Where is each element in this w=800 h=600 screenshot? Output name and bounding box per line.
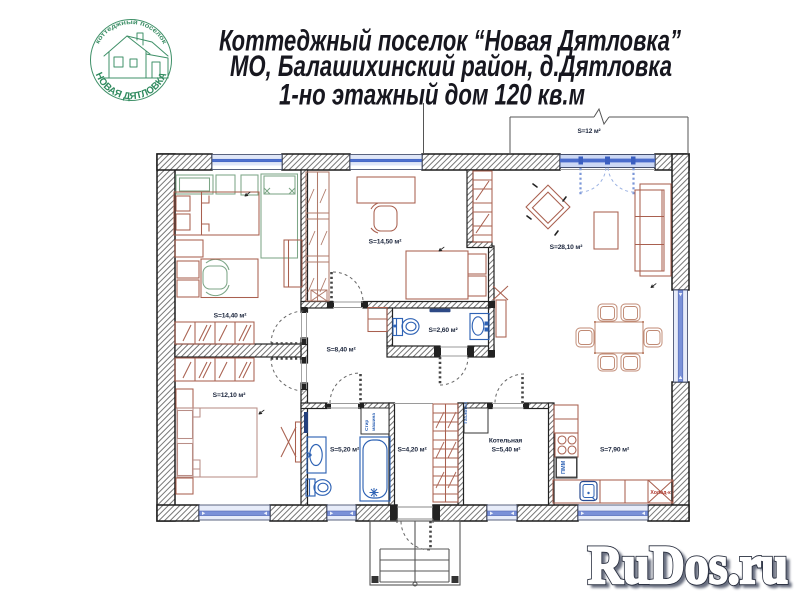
svg-text:Стир: Стир xyxy=(364,420,369,431)
svg-text:S=2,60 м²: S=2,60 м² xyxy=(428,327,458,334)
svg-text:Газ.котел: Газ.котел xyxy=(463,402,468,423)
svg-text:S=4,20 м²: S=4,20 м² xyxy=(397,447,427,454)
svg-text:Холод-к: Холод-к xyxy=(650,490,671,496)
svg-text:S=14,50 м²: S=14,50 м² xyxy=(369,239,403,246)
svg-text:S=12,10 м²: S=12,10 м² xyxy=(213,392,247,399)
svg-text:S=8,40 м²: S=8,40 м² xyxy=(326,347,356,354)
svg-text:ПММ: ПММ xyxy=(561,460,567,474)
svg-text:машина: машина xyxy=(371,413,376,431)
svg-text:S=5,40 м²: S=5,40 м² xyxy=(492,447,522,454)
svg-text:S=5,20 м²: S=5,20 м² xyxy=(330,447,360,454)
svg-text:S=12 м²: S=12 м² xyxy=(577,128,601,135)
svg-text:1-но этажный дом 120 кв.м: 1-но этажный дом 120 кв.м xyxy=(279,79,585,112)
svg-text:S=28,10 м²: S=28,10 м² xyxy=(550,244,584,251)
svg-text:Котельная: Котельная xyxy=(489,438,522,445)
svg-text:RuDos.ru: RuDos.ru xyxy=(588,535,788,595)
svg-text:S=7,90 м²: S=7,90 м² xyxy=(600,447,630,454)
svg-text:S=14,40 м²: S=14,40 м² xyxy=(214,313,248,320)
